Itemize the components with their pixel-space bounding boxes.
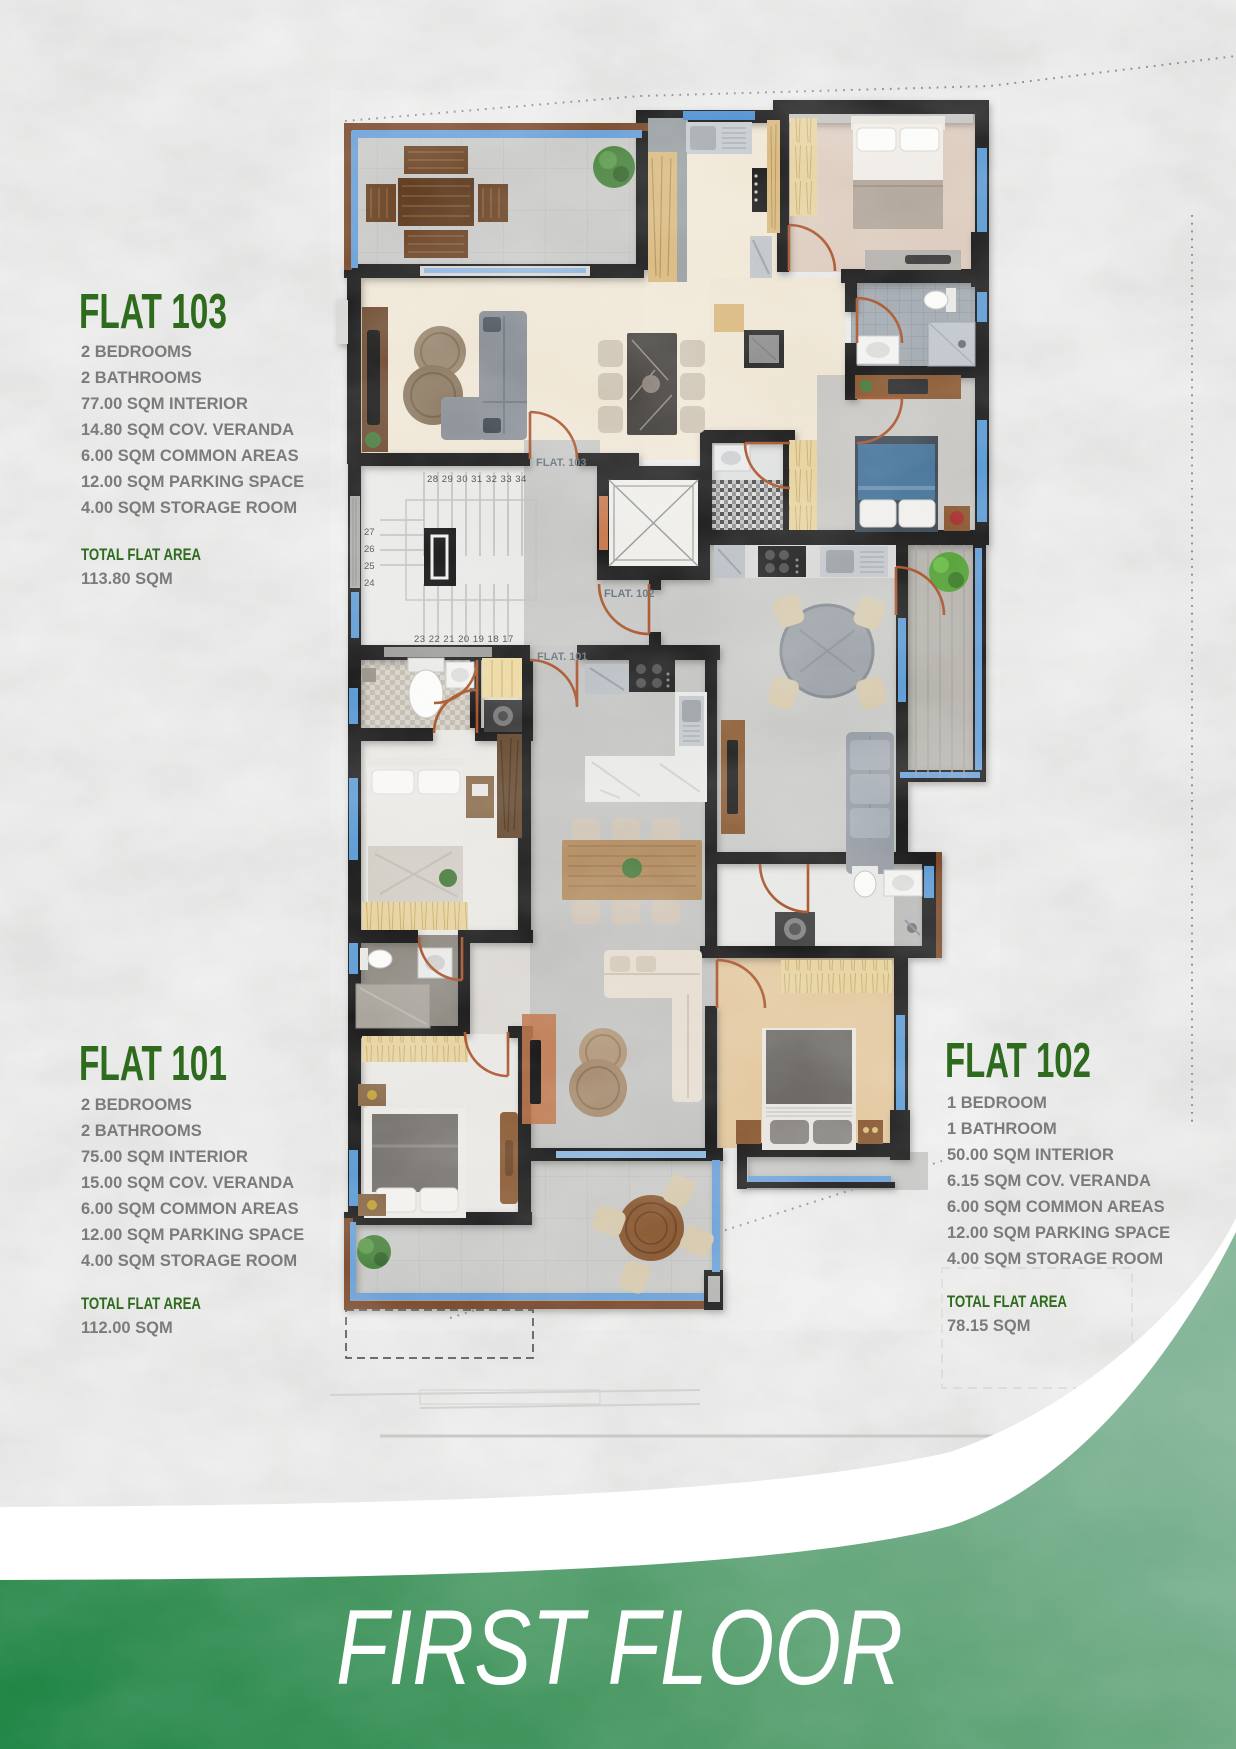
svg-text:6.00 SQM COMMON AREAS: 6.00 SQM COMMON AREAS (81, 1200, 299, 1218)
svg-text:FIRST FLOOR: FIRST FLOOR (336, 1587, 903, 1707)
svg-text:TOTAL FLAT AREA: TOTAL FLAT AREA (81, 1294, 201, 1313)
svg-text:15.00 SQM COV. VERANDA: 15.00 SQM COV. VERANDA (81, 1174, 294, 1192)
svg-text:TOTAL FLAT AREA: TOTAL FLAT AREA (947, 1292, 1067, 1311)
svg-text:75.00 SQM INTERIOR: 75.00 SQM INTERIOR (81, 1148, 248, 1166)
svg-text:4.00 SQM STORAGE ROOM: 4.00 SQM STORAGE ROOM (947, 1250, 1163, 1268)
svg-text:FLAT 101: FLAT 101 (79, 1037, 227, 1091)
svg-text:2 BATHROOMS: 2 BATHROOMS (81, 1122, 202, 1140)
svg-text:2 BATHROOMS: 2 BATHROOMS (81, 369, 202, 387)
svg-text:2 BEDROOMS: 2 BEDROOMS (81, 343, 192, 361)
svg-text:12.00 SQM PARKING SPACE: 12.00 SQM PARKING SPACE (81, 1226, 304, 1244)
svg-text:1 BEDROOM: 1 BEDROOM (947, 1094, 1047, 1112)
svg-text:1 BATHROOM: 1 BATHROOM (947, 1120, 1057, 1138)
svg-text:6.00 SQM COMMON AREAS: 6.00 SQM COMMON AREAS (947, 1198, 1165, 1216)
svg-text:2 BEDROOMS: 2 BEDROOMS (81, 1096, 192, 1114)
svg-text:112.00 SQM: 112.00 SQM (81, 1319, 173, 1337)
svg-text:14.80 SQM COV. VERANDA: 14.80 SQM COV. VERANDA (81, 421, 294, 439)
svg-text:12.00 SQM PARKING SPACE: 12.00 SQM PARKING SPACE (81, 473, 304, 491)
svg-text:50.00 SQM INTERIOR: 50.00 SQM INTERIOR (947, 1146, 1114, 1164)
svg-text:4.00 SQM STORAGE ROOM: 4.00 SQM STORAGE ROOM (81, 1252, 297, 1270)
svg-text:12.00 SQM PARKING SPACE: 12.00 SQM PARKING SPACE (947, 1224, 1170, 1242)
svg-text:FLAT 102: FLAT 102 (945, 1034, 1091, 1088)
svg-text:78.15 SQM: 78.15 SQM (947, 1317, 1030, 1335)
svg-text:77.00 SQM INTERIOR: 77.00 SQM INTERIOR (81, 395, 248, 413)
svg-text:6.00 SQM COMMON AREAS: 6.00 SQM COMMON AREAS (81, 447, 299, 465)
svg-text:FLAT 103: FLAT 103 (79, 285, 227, 339)
svg-text:TOTAL FLAT AREA: TOTAL FLAT AREA (81, 545, 201, 564)
svg-text:113.80 SQM: 113.80 SQM (81, 570, 173, 588)
svg-text:4.00 SQM STORAGE ROOM: 4.00 SQM STORAGE ROOM (81, 499, 297, 517)
svg-text:6.15 SQM COV. VERANDA: 6.15 SQM COV. VERANDA (947, 1172, 1151, 1190)
